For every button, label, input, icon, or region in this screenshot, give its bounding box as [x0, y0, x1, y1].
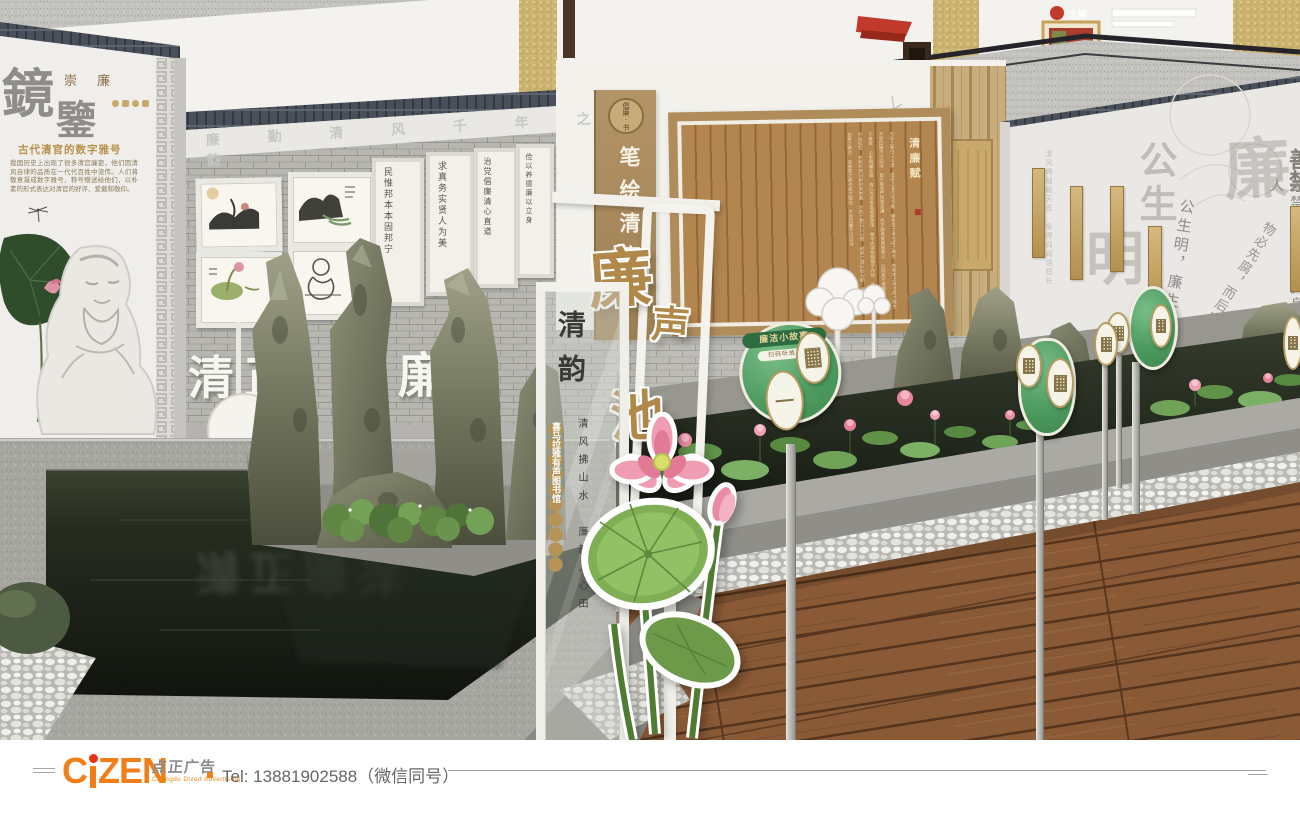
qr-medallion-small: [1094, 322, 1118, 366]
qr-code: [1156, 319, 1166, 333]
footer-rule-left: [33, 768, 55, 769]
qr-code: [804, 347, 822, 368]
glass-frame-left: [536, 282, 546, 740]
glass-frame-top: [536, 282, 628, 291]
qr-code: [1054, 375, 1067, 392]
i-dot: [89, 754, 98, 763]
i-stem: [90, 766, 96, 788]
brand-letter-c: C: [62, 754, 88, 788]
story-sign-right: [1014, 334, 1074, 434]
qr-code: [1288, 336, 1298, 350]
qr-medallion: [1150, 304, 1172, 348]
lotus-cutout-decoration: [570, 412, 785, 740]
sign-post: [1102, 360, 1108, 520]
qr-medallion: [1046, 358, 1074, 408]
sign-post: [1132, 362, 1140, 514]
footer-rule-left-2: [33, 772, 55, 773]
footer-rule-right-2: [1248, 774, 1268, 775]
rockery-main: [248, 238, 566, 548]
render-page: 鏡 鑒 崇 廉 古代清官的数字雅号 我国历史上出现了很多清官廉吏，他们因清风自律…: [0, 0, 1300, 813]
bullet-separator: [207, 772, 213, 778]
lotus-cutout-flower: [612, 414, 712, 497]
sign-post: [786, 444, 796, 740]
sign-post: [1036, 428, 1044, 740]
qr-code: [1023, 358, 1035, 374]
pond-sign-char-sheng: 声: [650, 293, 692, 351]
exhibition-hall-render: 鏡 鑒 崇 廉 古代清官的数字雅号 我国历史上出现了很多清官廉吏，他们因清风自律…: [0, 0, 1300, 740]
medallion-column: 喜马拉雅有声图书馆: [548, 422, 563, 572]
lotus-cutout-bud: [705, 482, 740, 527]
qr-medallion: [1016, 344, 1042, 388]
footer-rule-right: [448, 770, 1266, 771]
story-sign-cluster: [1106, 282, 1176, 372]
lotus-cutout-leaf-large: [573, 488, 722, 620]
qr-code: [776, 399, 794, 403]
footer: C ZEN 点正广告 Chengdu Dized Advertising Tel…: [0, 740, 1300, 813]
brand-letter-i: [88, 754, 98, 788]
qr-medallion-edge: [1283, 316, 1300, 370]
glass-title: 清韵: [550, 310, 590, 398]
qr-code: [1101, 337, 1112, 352]
contact-phone: Tel: 13881902588（微信同号）: [222, 762, 459, 787]
